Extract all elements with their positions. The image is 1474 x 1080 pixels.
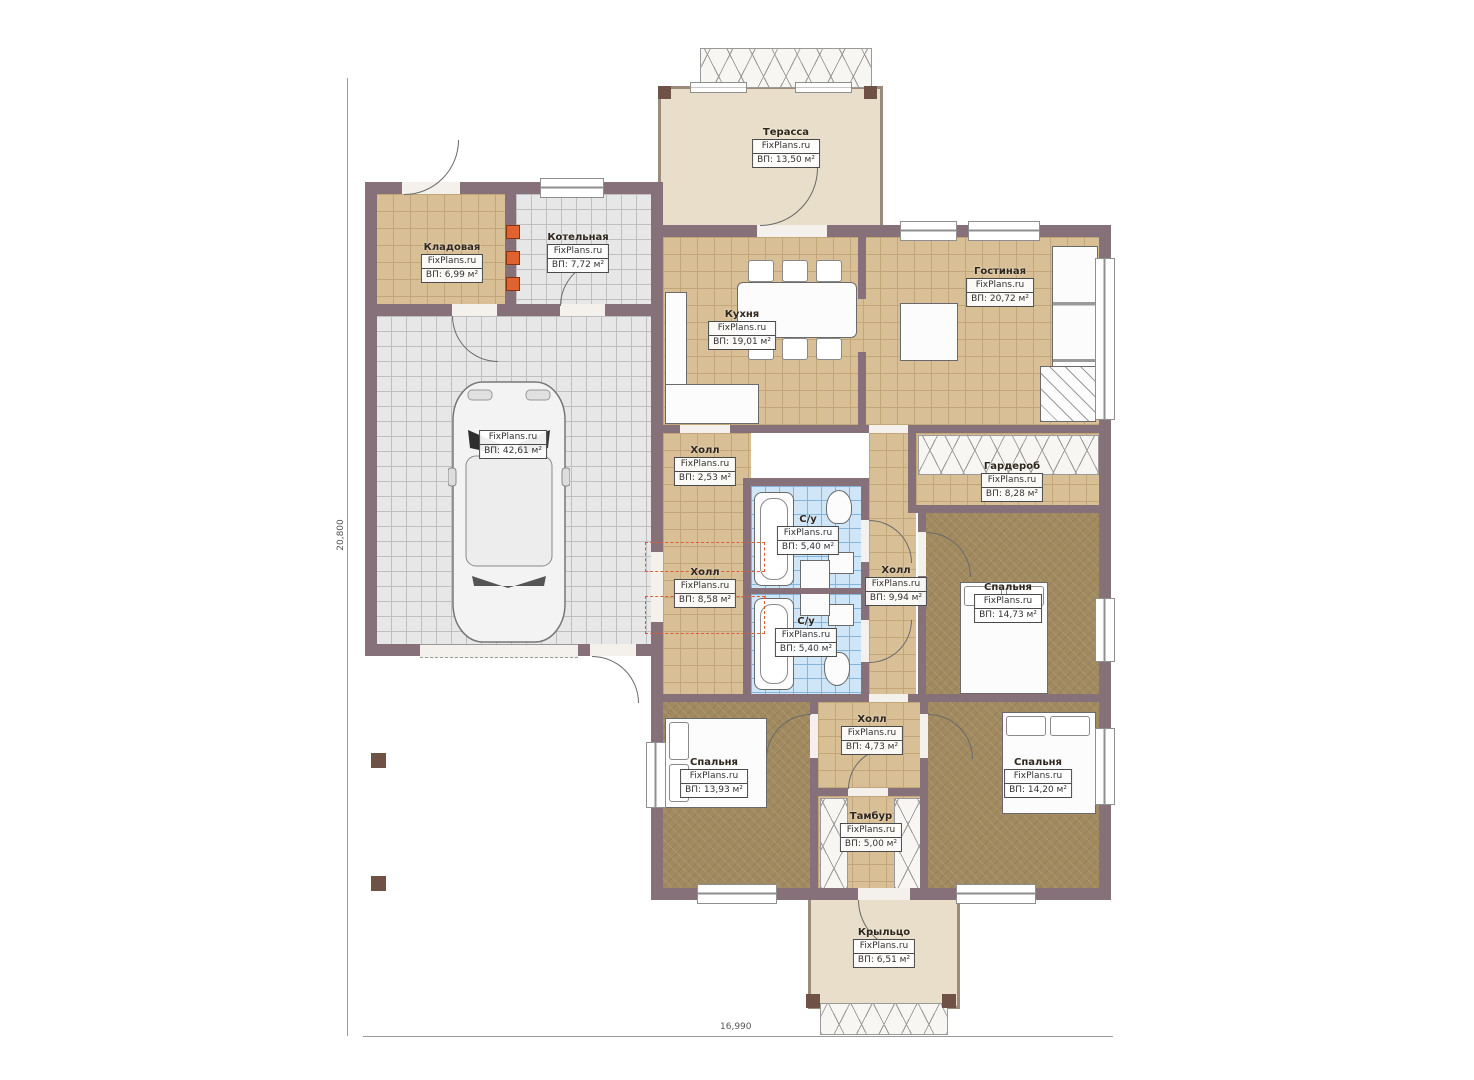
label-boiler: Котельная FixPlans.ruВП: 7,72 м²	[547, 231, 609, 273]
pillow-right-2	[1050, 716, 1090, 736]
vent-marker-3	[506, 277, 520, 291]
area-text: ВП: 5,40 м²	[776, 642, 836, 656]
room-name: С/у	[777, 513, 839, 526]
label-wardrobe: Гардероб FixPlans.ruВП: 8,28 м²	[981, 460, 1043, 502]
wall-bath-top	[743, 478, 869, 486]
window-bedroom-right-right	[1095, 728, 1115, 805]
wall-bath-mid	[751, 588, 861, 594]
room-name: Тамбур	[840, 810, 902, 823]
dimension-height-label: 20,800	[336, 519, 346, 551]
brand-text: FixPlans.ru	[967, 279, 1033, 292]
corner-shelf	[1040, 366, 1096, 422]
label-bedroom-left: Спальня FixPlans.ruВП: 13,93 м²	[680, 756, 748, 798]
door-porch-gap	[858, 888, 910, 900]
terrace-window-right	[795, 82, 852, 93]
window-boiler-top	[540, 178, 604, 198]
chair-1	[748, 260, 774, 282]
chair-5	[782, 338, 808, 360]
area-text: ВП: 13,50 м²	[753, 153, 819, 167]
room-name: Холл	[841, 713, 903, 726]
label-hall-mid: Холл FixPlans.ruВП: 8,58 м²	[674, 566, 736, 608]
dimension-line-vertical	[347, 78, 348, 1036]
area-text: ВП: 9,94 м²	[866, 591, 926, 605]
brand-text: FixPlans.ru	[866, 578, 926, 591]
door-bedroom-left-gap	[810, 714, 818, 758]
room-name: Спальня	[974, 581, 1042, 594]
room-name: Терасса	[752, 126, 820, 139]
area-text: ВП: 6,51 м²	[854, 953, 914, 967]
pillow-right-1	[1006, 716, 1046, 736]
door-garage-side-arc	[592, 656, 639, 703]
terrace-window-left	[690, 82, 747, 93]
dimension-line-horizontal	[363, 1036, 1113, 1037]
area-text: ВП: 7,72 м²	[548, 258, 608, 272]
label-storage: Кладовая FixPlans.ruВП: 6,99 м²	[421, 241, 483, 283]
room-name: Гостиная	[966, 265, 1034, 278]
porch-roof-hatch	[820, 1003, 948, 1035]
opening-hall-bottom	[869, 694, 908, 702]
area-text: ВП: 6,99 м²	[422, 268, 482, 282]
door-bedroom-right-gap	[920, 714, 928, 758]
brand-text: FixPlans.ru	[480, 431, 546, 444]
window-bedroom-left-bottom	[697, 884, 777, 904]
wall-kitchen-living-a	[858, 237, 866, 299]
room-name: Крыльцо	[853, 926, 915, 939]
wall-garage-inner-h	[365, 304, 663, 316]
car-icon	[448, 378, 570, 646]
label-bedroom-mid: Спальня FixPlans.ruВП: 14,73 м²	[974, 581, 1042, 623]
pergola-post-1	[371, 753, 386, 768]
window-living-top-1	[900, 221, 957, 241]
label-wc-bottom: С/у FixPlans.ruВП: 5,40 м²	[775, 615, 837, 657]
window-bedroom-right-bottom	[956, 884, 1036, 904]
door-tambour-gap	[848, 788, 888, 796]
label-porch: Крыльцо FixPlans.ruВП: 6,51 м²	[853, 926, 915, 968]
brand-text: FixPlans.ru	[753, 140, 819, 153]
brand-text: FixPlans.ru	[778, 527, 838, 540]
terrace-post-right	[864, 86, 877, 99]
room-name: Холл	[865, 564, 927, 577]
vent-marker-1	[506, 225, 520, 239]
door-wc-bottom-gap	[861, 620, 869, 662]
area-text: ВП: 8,58 м²	[675, 593, 735, 607]
brand-text: FixPlans.ru	[842, 727, 902, 740]
door-terrace-gap	[757, 225, 827, 237]
wall-kitchen-living-b	[858, 352, 866, 425]
wall-house-top	[651, 225, 1110, 237]
dimension-width-label: 16,990	[720, 1022, 752, 1032]
room-name: Гардероб	[981, 460, 1043, 473]
window-bedroom-mid-right	[1095, 598, 1115, 662]
door-wc-top-gap	[861, 520, 869, 562]
room-name: Спальня	[680, 756, 748, 769]
room-name: Холл	[674, 444, 736, 457]
kitchen-counter-bottom	[665, 384, 759, 424]
brand-text: FixPlans.ru	[709, 322, 775, 335]
brand-text: FixPlans.ru	[975, 595, 1041, 608]
area-text: ВП: 8,28 м²	[982, 487, 1042, 501]
wall-garage-left	[365, 182, 377, 656]
window-living-right	[1095, 258, 1115, 420]
area-text: ВП: 19,01 м²	[709, 335, 775, 349]
label-bedroom-right: Спальня FixPlans.ruВП: 14,20 м²	[1004, 756, 1072, 798]
chair-3	[816, 260, 842, 282]
label-hall-right: Холл FixPlans.ruВП: 9,94 м²	[865, 564, 927, 606]
room-name: С/у	[775, 615, 837, 628]
label-living: Гостиная FixPlans.ruВП: 20,72 м²	[966, 265, 1034, 307]
door-garage-side-gap	[590, 644, 636, 656]
porch-post-right	[942, 994, 956, 1008]
window-bedroom-left-left	[646, 742, 666, 808]
chair-2	[782, 260, 808, 282]
vent-marker-2	[506, 251, 520, 265]
brand-text: FixPlans.ru	[841, 824, 901, 837]
porch-post-left	[806, 994, 820, 1008]
door-storage-gap	[452, 304, 497, 316]
brand-text: FixPlans.ru	[675, 458, 735, 471]
brand-text: FixPlans.ru	[776, 629, 836, 642]
sink-top	[828, 552, 854, 574]
terrace-post-left	[658, 86, 671, 99]
garage-gate-gap	[420, 644, 578, 658]
brand-text: FixPlans.ru	[548, 245, 608, 258]
area-text: ВП: 13,93 м²	[681, 783, 747, 797]
pergola-post-2	[371, 876, 386, 891]
pillow-left-1	[669, 722, 689, 760]
label-terrace: Терасса FixPlans.ruВП: 13,50 м²	[752, 126, 820, 168]
area-text: ВП: 5,40 м²	[778, 540, 838, 554]
area-text: ВП: 4,73 м²	[842, 740, 902, 754]
coffee-table	[900, 303, 958, 361]
area-text: ВП: 20,72 м²	[967, 292, 1033, 306]
floor-plan: 20,800 16,990	[0, 0, 1474, 1080]
brand-text: FixPlans.ru	[681, 770, 747, 783]
label-kitchen: Кухня FixPlans.ruВП: 19,01 м²	[708, 308, 776, 350]
window-living-top-2	[968, 221, 1040, 241]
brand-text: FixPlans.ru	[854, 940, 914, 953]
toilet-bottom	[824, 652, 850, 686]
room-name: Спальня	[1004, 756, 1072, 769]
room-name: Котельная	[547, 231, 609, 244]
room-name: Кладовая	[421, 241, 483, 254]
brand-text: FixPlans.ru	[422, 255, 482, 268]
wall-wardrobe-left	[908, 433, 916, 505]
wall-bath-left	[743, 478, 751, 694]
label-wc-top: С/у FixPlans.ruВП: 5,40 м²	[777, 513, 839, 555]
area-text: ВП: 14,20 м²	[1005, 783, 1071, 797]
wall-wardrobe-bottom	[908, 505, 1099, 513]
brand-text: FixPlans.ru	[1005, 770, 1071, 783]
area-text: ВП: 14,73 м²	[975, 608, 1041, 622]
area-text: ВП: 42,61 м²	[480, 444, 546, 458]
area-text: ВП: 5,00 м²	[841, 837, 901, 851]
brand-text: FixPlans.ru	[982, 474, 1042, 487]
room-name: Кухня	[708, 308, 776, 321]
brand-text: FixPlans.ru	[675, 580, 735, 593]
door-kitchen-hall-gap	[680, 425, 730, 433]
room-name: Холл	[674, 566, 736, 579]
label-hall-bottom: Холл FixPlans.ruВП: 4,73 м²	[841, 713, 903, 755]
opening-hall-corridor	[869, 425, 908, 433]
area-text: ВП: 2,53 м²	[675, 471, 735, 485]
label-tambour: Тамбур FixPlans.ruВП: 5,00 м²	[840, 810, 902, 852]
label-hall-small: Холл FixPlans.ruВП: 2,53 м²	[674, 444, 736, 486]
label-garage: FixPlans.ruВП: 42,61 м²	[479, 430, 547, 459]
chair-6	[816, 338, 842, 360]
